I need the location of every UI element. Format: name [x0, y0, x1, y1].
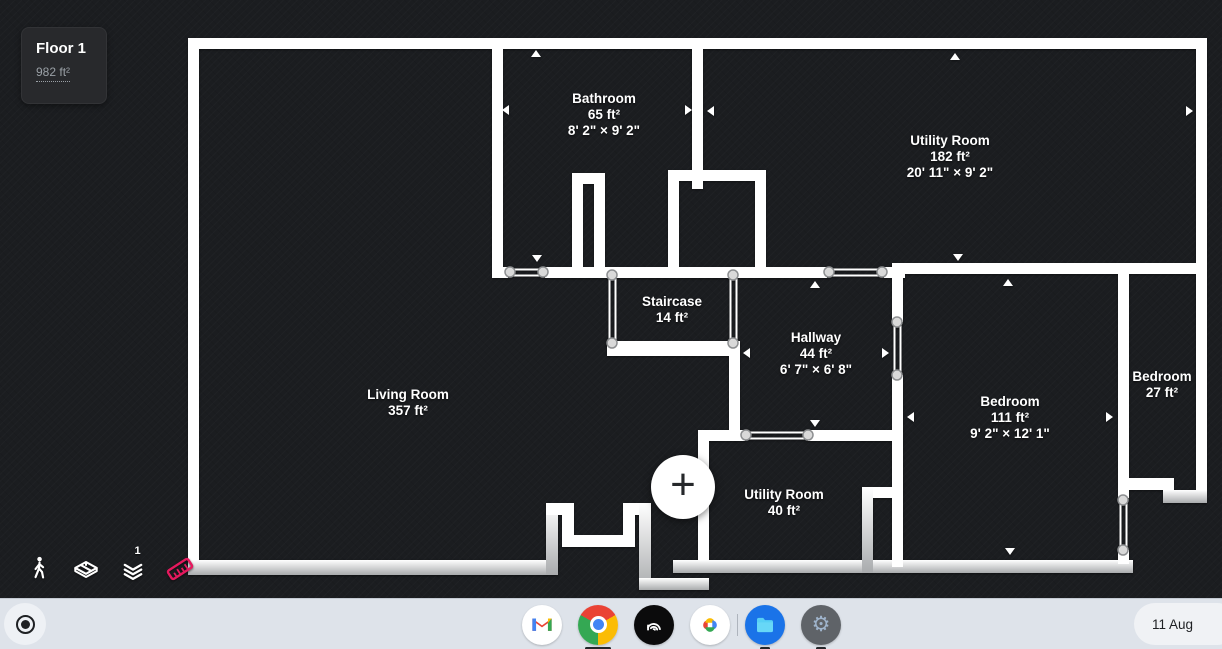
room-dims: 20' 11" × 9' 2"	[907, 165, 993, 181]
room-area: 40 ft²	[744, 503, 824, 519]
launcher-icon	[16, 615, 35, 634]
room-label[interactable]: Bathroom65 ft²8' 2" × 9' 2"	[568, 91, 640, 139]
ruler-icon	[165, 554, 195, 584]
room-area: 27 ft²	[1132, 385, 1191, 401]
room-name: Utility Room	[744, 487, 824, 503]
room-area: 44 ft²	[780, 346, 852, 362]
files-app-button[interactable]	[745, 605, 785, 645]
google-photos-icon	[690, 605, 730, 645]
room-label[interactable]: Staircase14 ft²	[642, 294, 702, 326]
room-name: Bathroom	[568, 91, 640, 107]
room-area: 14 ft²	[642, 310, 702, 326]
room-dims: 6' 7" × 6' 8"	[780, 362, 852, 378]
floorplan-app-button[interactable]	[634, 605, 674, 645]
app-launcher-button[interactable]	[4, 603, 46, 645]
room-area: 182 ft²	[907, 149, 993, 165]
room-label[interactable]: Bedroom27 ft²	[1132, 369, 1191, 401]
shelf-separator	[737, 614, 738, 636]
shelf-app-row: ⚙	[522, 602, 841, 647]
room-label[interactable]: Utility Room40 ft²	[744, 487, 824, 519]
settings-app-button[interactable]: ⚙	[801, 605, 841, 645]
room-label[interactable]: Hallway44 ft²6' 7" × 6' 8"	[780, 330, 852, 378]
room-area: 65 ft²	[568, 107, 640, 123]
files-icon	[745, 605, 785, 645]
room-dims: 8' 2" × 9' 2"	[568, 123, 640, 139]
screen: Bathroom65 ft²8' 2" × 9' 2"Utility Room1…	[0, 0, 1222, 649]
chrome-icon	[578, 605, 618, 645]
add-room-button[interactable]: +	[651, 455, 715, 519]
room-name: Bedroom	[1132, 369, 1191, 385]
room-dims: 9' 2" × 12' 1"	[970, 426, 1050, 442]
room-name: Staircase	[642, 294, 702, 310]
settings-gear-icon: ⚙	[801, 605, 841, 645]
room-name: Hallway	[780, 330, 852, 346]
google-photos-app-button[interactable]	[690, 605, 730, 645]
floorplan-app-icon	[634, 605, 674, 645]
shelf-date: 11 Aug	[1152, 617, 1193, 632]
room-name: Utility Room	[907, 133, 993, 149]
layers-icon	[119, 555, 147, 583]
room-label[interactable]: Bedroom111 ft²9' 2" × 12' 1"	[970, 394, 1050, 442]
floorplan-canvas[interactable]: Bathroom65 ft²8' 2" × 9' 2"Utility Room1…	[0, 0, 1222, 598]
status-area[interactable]: 11 Aug	[1134, 603, 1222, 645]
gmail-icon	[522, 605, 562, 645]
walk-mode-icon	[26, 555, 52, 583]
gmail-app-button[interactable]	[522, 605, 562, 645]
room-name: Living Room	[367, 387, 449, 403]
room-name: Bedroom	[970, 394, 1050, 410]
room-label[interactable]: Living Room357 ft²	[367, 387, 449, 419]
floorplan-drawing	[0, 0, 1222, 598]
layers-button[interactable]: 1	[118, 554, 148, 584]
3d-view-icon	[71, 556, 101, 582]
3d-view-button[interactable]	[71, 554, 101, 584]
floor-area[interactable]: 982 ft²	[36, 65, 70, 82]
measure-button[interactable]	[165, 554, 195, 584]
room-area: 357 ft²	[367, 403, 449, 419]
walk-mode-button[interactable]	[24, 554, 54, 584]
floor-title: Floor 1	[36, 40, 92, 57]
plan-toolbar: 1	[24, 554, 195, 584]
chrome-app-button[interactable]	[578, 605, 618, 645]
room-area: 111 ft²	[970, 410, 1050, 426]
floor-card[interactable]: Floor 1 982 ft²	[21, 27, 107, 104]
room-label[interactable]: Utility Room182 ft²20' 11" × 9' 2"	[907, 133, 993, 181]
plus-icon: +	[670, 463, 696, 507]
chromeos-shelf: ⚙ 11 Aug	[0, 598, 1222, 649]
